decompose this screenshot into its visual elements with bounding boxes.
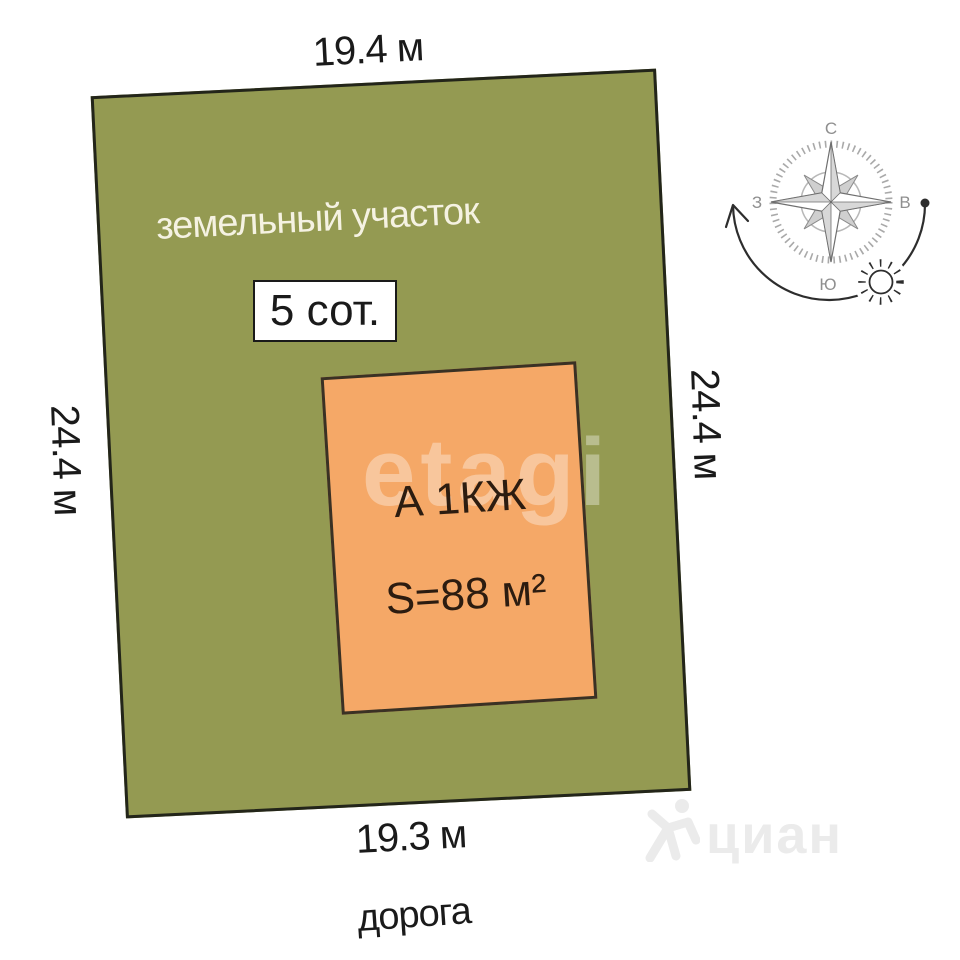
plot-area-badge: 5 сот. — [253, 280, 397, 342]
sun-path-start-dot — [921, 199, 930, 208]
compass-label-east: В — [899, 193, 910, 212]
dimension-left: 24.4 м — [43, 379, 89, 540]
cian-logo-icon — [642, 796, 700, 862]
cian-watermark: циан — [642, 796, 843, 866]
dimension-right: 24.4 м — [683, 343, 729, 504]
building-shape — [321, 361, 598, 714]
sun-icon — [870, 271, 893, 294]
dimension-bottom: 19.3 м — [330, 811, 492, 864]
compass-rose-icon: С В Ю З — [705, 112, 945, 307]
compass-label-north: С — [825, 119, 837, 138]
sun-path-arrowhead — [726, 205, 748, 227]
dimension-top: 19.4 м — [287, 24, 449, 77]
compass-label-west: З — [752, 193, 762, 212]
plot-area-badge-text: 5 сот. — [270, 286, 380, 336]
compass-label-south: Ю — [819, 275, 836, 294]
road-label: дорога — [333, 888, 496, 942]
cian-watermark-text: циан — [706, 804, 843, 866]
